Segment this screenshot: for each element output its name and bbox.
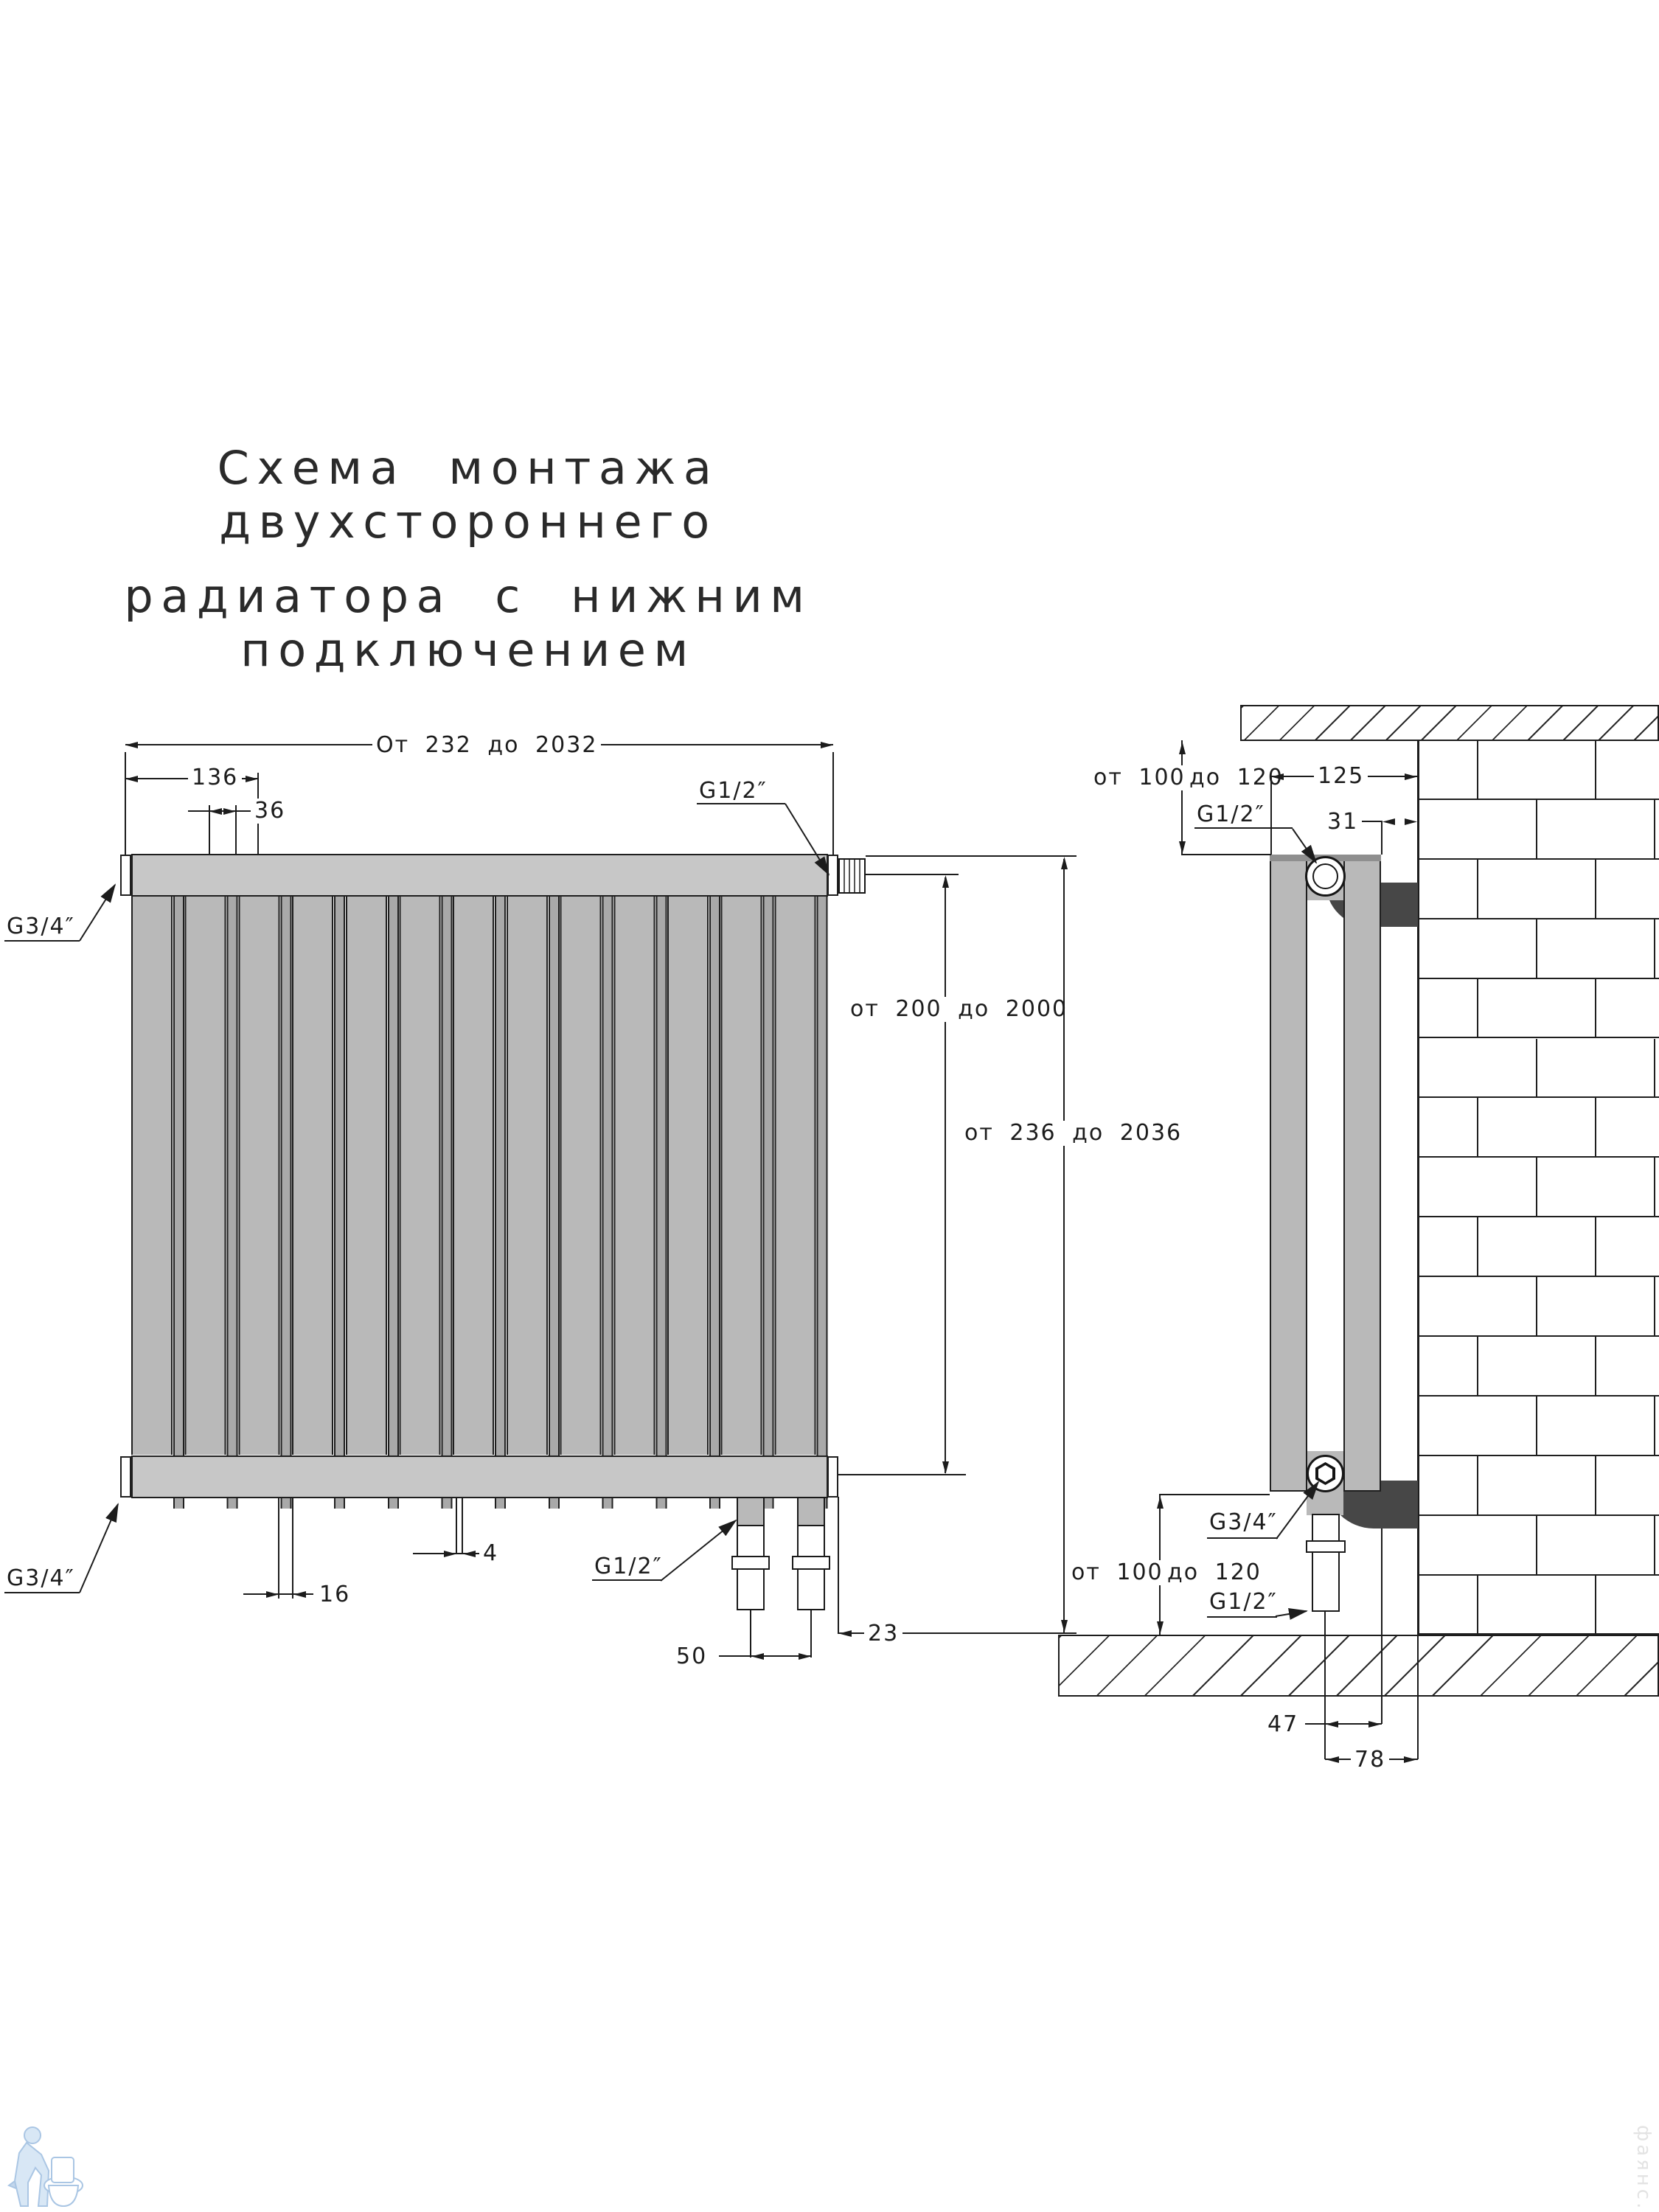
label-g34-top-left: G3/4″: [3, 914, 79, 939]
arrow-78-left-icon: [1326, 1756, 1339, 1763]
arrow-125-right-icon: [1405, 773, 1417, 780]
underline-g12-side-top: [1194, 827, 1293, 829]
dim-bottom-gap-left: от 100: [1068, 1560, 1167, 1585]
arrow-31-right-icon: [1405, 818, 1417, 825]
arrow-left-icon: [125, 742, 138, 748]
brick-row: [1418, 1337, 1659, 1397]
brick-row: [1418, 1039, 1659, 1099]
dim-top-gap-left: от 100: [1090, 765, 1189, 790]
dim-78: 78: [1351, 1747, 1389, 1773]
brick-joint: [1536, 1397, 1537, 1455]
brick-row: [1418, 919, 1659, 979]
side-bar-front: [1270, 855, 1307, 1492]
leader-g34-bottom-left: [74, 1497, 125, 1600]
ext-200-top: [866, 874, 959, 875]
brick-row: [1418, 740, 1659, 800]
brick-row: [1418, 800, 1659, 860]
arrow-200-down-icon: [942, 1461, 949, 1474]
dim-47: 47: [1264, 1712, 1302, 1737]
ext-31: [1381, 821, 1382, 855]
underline-g12-side-bottom: [1207, 1616, 1277, 1618]
ext-4a: [456, 1498, 457, 1554]
arrow-47-right-icon: [1368, 1721, 1381, 1728]
dim-height-sections: от 200 до 2000: [846, 997, 1071, 1022]
ext-bottom-gap: [1159, 1494, 1270, 1495]
dim-125: 125: [1314, 764, 1368, 789]
radiator-top-header: [131, 854, 828, 897]
arrow-78-right-icon: [1404, 1756, 1416, 1763]
arrow-136-right-icon: [246, 776, 258, 782]
ext-pipe-center: [1324, 1612, 1326, 1759]
side-bar-back: [1343, 855, 1381, 1492]
arrow-236-up-icon: [1061, 857, 1068, 869]
brick-joint: [1595, 1337, 1596, 1395]
arrow-236-down-icon: [1061, 1620, 1068, 1632]
brick-joint: [1654, 1277, 1655, 1335]
brick-joint: [1654, 1039, 1655, 1097]
brick-joint: [1595, 1098, 1596, 1156]
end-plate-bottom-right: [827, 1456, 838, 1498]
dim-4: 4: [479, 1541, 502, 1566]
brick-joint: [1536, 1277, 1537, 1335]
floor-hatch: [1058, 1635, 1659, 1697]
arrow-right-icon: [821, 742, 833, 748]
arrow-top-gap-down-icon: [1179, 841, 1186, 854]
ext-236-top: [866, 855, 1077, 857]
ext-line-36a: [209, 805, 210, 855]
watermark-plumber-logo: [6, 2124, 87, 2211]
brick-joint: [1595, 979, 1596, 1037]
brick-row: [1418, 1576, 1659, 1635]
brick-row: [1418, 1217, 1659, 1277]
brick-joint: [1654, 1397, 1655, 1455]
ceiling-hatch: [1240, 705, 1659, 741]
brick-row: [1418, 979, 1659, 1039]
underline-g12-pipes: [592, 1579, 662, 1581]
watermark-site-text: фаянс.рф: [1632, 2125, 1655, 2212]
brick-joint: [1536, 1039, 1537, 1097]
leader-g34-top-left: [74, 877, 125, 947]
ext-4b: [462, 1498, 463, 1554]
brick-wall: [1418, 740, 1659, 1635]
dim-height-total: от 236 до 2036: [961, 1121, 1186, 1146]
dim-36: 36: [251, 799, 289, 824]
brick-joint: [1654, 800, 1655, 858]
ext-50b: [810, 1610, 812, 1658]
arrow-136-left-icon: [125, 776, 138, 782]
ext-bracket: [1381, 1528, 1382, 1724]
brick-joint: [1477, 1456, 1478, 1514]
brick-row: [1418, 1397, 1659, 1456]
label-g34-bottom-left: G3/4″: [3, 1566, 79, 1591]
arrow-31-left-icon: [1382, 818, 1395, 825]
label-g12-side-top: G1/2″: [1193, 802, 1269, 827]
dim-line-top-gap: [1181, 740, 1183, 855]
brick-joint: [1595, 1576, 1596, 1634]
brick-joint: [1477, 1217, 1478, 1276]
dim-top-gap-right: до 120: [1186, 765, 1287, 790]
leader-g34-side-bottom: [1270, 1473, 1329, 1547]
ext-line-left: [125, 752, 126, 855]
ext-50a: [750, 1610, 751, 1658]
title-line-1: Схема монтажа двухстороннего: [29, 441, 907, 549]
arrow-bottom-gap-down-icon: [1157, 1621, 1164, 1634]
brick-joint: [1536, 800, 1537, 858]
dim-16: 16: [316, 1582, 354, 1607]
ext-top-gap: [1181, 854, 1271, 855]
radiator-bottom-header: [131, 1455, 828, 1498]
pipe-stub-right: [797, 1497, 825, 1526]
leader-g12-pipes: [655, 1512, 747, 1589]
underline-g34-tl: [4, 940, 80, 942]
arrow-4-left-icon: [444, 1551, 456, 1557]
brick-joint: [1477, 1337, 1478, 1395]
brick-joint: [1536, 1158, 1537, 1216]
title-line-2: радиатора с нижним подключением: [29, 569, 907, 677]
brick-row: [1418, 860, 1659, 919]
brick-row: [1418, 1277, 1659, 1337]
brick-joint: [1477, 1576, 1478, 1634]
ext-16b: [292, 1498, 293, 1599]
ext-125: [1270, 776, 1272, 855]
brick-joint: [1536, 1516, 1537, 1574]
ext-line-36b: [235, 805, 237, 855]
dim-line-200: [945, 877, 946, 1473]
dim-50: 50: [672, 1644, 711, 1669]
brick-row: [1418, 1456, 1659, 1516]
arrow-36-left-icon: [209, 808, 222, 815]
leader-g12-side-top: [1287, 823, 1327, 871]
brick-joint: [1654, 919, 1655, 978]
ext-23: [838, 1497, 839, 1634]
leader-g12-top-right: [780, 798, 839, 883]
underline-g12-tr: [697, 803, 785, 804]
dim-136: 136: [188, 765, 242, 790]
arrow-50-left-icon: [751, 1653, 764, 1660]
brick-row: [1418, 1098, 1659, 1158]
ext-200-bottom: [838, 1474, 966, 1475]
arrow-4-right-icon: [463, 1551, 476, 1557]
dim-line-50: [719, 1655, 812, 1657]
arrow-bottom-gap-up-icon: [1157, 1496, 1164, 1509]
radiator-front-sections: [131, 897, 828, 1455]
dim-31: 31: [1324, 810, 1362, 835]
arrow-50-right-icon: [799, 1653, 811, 1660]
brick-row: [1418, 1158, 1659, 1217]
leader-g12-side-bottom: [1270, 1600, 1318, 1622]
arrow-top-gap-up-icon: [1179, 742, 1186, 754]
drawing-title: Схема монтажа двухстороннего радиатора с…: [29, 441, 907, 698]
air-valve-icon: [838, 858, 866, 894]
dim-bottom-gap-right: до 120: [1164, 1560, 1265, 1585]
dim-line-31: [1360, 821, 1382, 822]
arrow-200-up-icon: [942, 875, 949, 888]
brick-joint: [1477, 979, 1478, 1037]
brick-joint: [1536, 919, 1537, 978]
dim-overall-width: От 232 до 2032: [372, 733, 601, 758]
brick-joint: [1595, 1456, 1596, 1514]
arrow-36-right-icon: [223, 808, 236, 815]
brick-joint: [1477, 1098, 1478, 1156]
arrow-47-left-icon: [1326, 1721, 1338, 1728]
brick-joint: [1595, 740, 1596, 799]
brick-joint: [1654, 1516, 1655, 1574]
underline-g34-side-bottom: [1207, 1537, 1278, 1539]
pipe-right-upper: [797, 1525, 825, 1557]
dim-23: 23: [864, 1621, 902, 1646]
arrow-16-right-icon: [293, 1591, 306, 1598]
drawing-page: Схема монтажа двухстороннего радиатора с…: [0, 0, 1659, 2212]
brick-joint: [1595, 860, 1596, 918]
label-g12-top-right: G1/2″: [695, 779, 771, 804]
brick-joint: [1595, 1217, 1596, 1276]
brick-joint: [1477, 740, 1478, 799]
dim-line-236: [1063, 859, 1065, 1633]
end-plate-bottom-left: [120, 1456, 131, 1498]
pipe-right-lower: [797, 1568, 825, 1610]
ext-16a: [278, 1498, 279, 1599]
brick-row: [1418, 1516, 1659, 1576]
underline-g34-bl: [4, 1592, 80, 1593]
ext-wall-face: [1417, 1635, 1419, 1759]
arrow-16-left-icon: [266, 1591, 279, 1598]
brick-joint: [1654, 1158, 1655, 1216]
brick-joint: [1477, 860, 1478, 918]
